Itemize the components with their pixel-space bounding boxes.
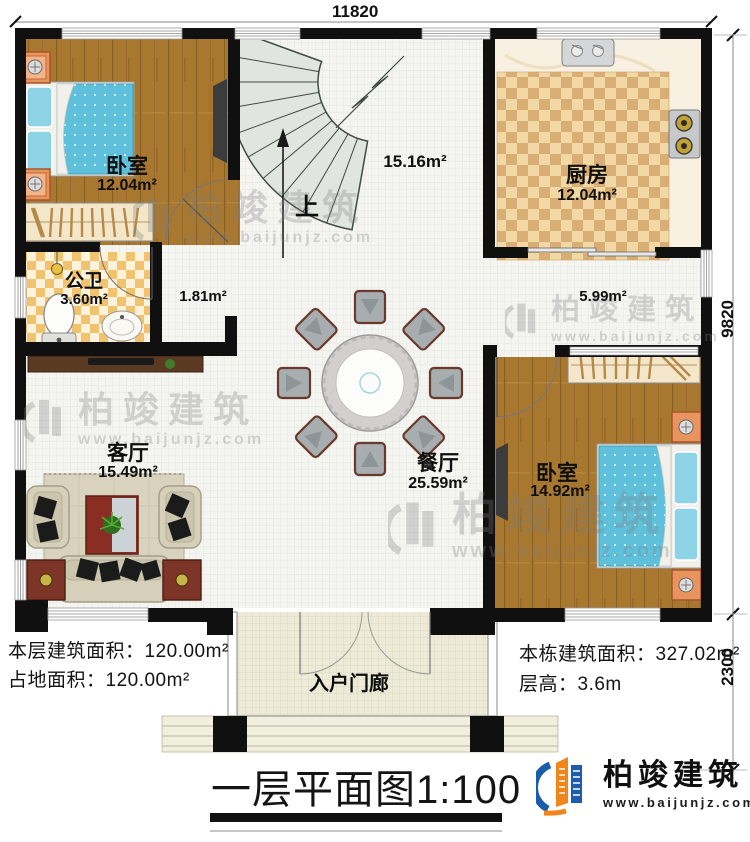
wardrobe-icon [20,203,153,241]
bathroom-sink-icon [102,311,142,341]
room-label-porch: 入户门廊 [309,674,389,694]
brand-url: www.baijunjz.com [603,795,750,810]
room-label-living: 客厅 [107,443,149,464]
floor-plan-page: 柏竣建筑www.baijunjz.com 柏竣建筑www.baijunjz.co… [0,0,750,842]
page-title: 一层平面图1:100 [211,757,521,815]
info-land-area-label: 占地面积： [8,670,106,691]
nightstand-icon [672,570,701,600]
page-title-scale: 1:100 [416,768,521,812]
info-land-area-value: 120.00m² [106,670,190,691]
info-floor-area-value: 120.00m² [145,641,229,662]
bed-icon [597,444,701,568]
title-underline [210,813,502,822]
brand-logo: 柏竣建筑 www.baijunjz.com [536,753,750,817]
room-area-bathroom: 3.60m² [60,292,108,307]
dim-top: 11820 [332,3,378,20]
info-storey-height: 层高：3.6m [519,669,622,696]
info-floor-area-label: 本层建筑面积： [8,641,145,662]
info-floor-area: 本层建筑面积：120.00m² [8,636,229,663]
info-total-area-value: 327.02m² [656,644,740,665]
info-storey-height-label: 层高： [519,674,578,695]
room-label-kitchen: 厨房 [566,165,608,186]
tv-panel-icon [213,79,227,163]
brand-name: 柏竣建筑 [603,760,750,792]
floor-plan-canvas [0,0,750,842]
dining-table-icon [278,291,462,475]
room-area-dining: 25.59m² [408,476,468,492]
tv-cabinet-icon [28,356,203,372]
room-label-bedroom2: 卧室 [536,463,578,484]
info-total-area: 本栋建筑面积：327.02m² [519,639,740,666]
room-area-living: 15.49m² [98,465,158,481]
kitchen-sink-icon [562,39,614,66]
room-area-bedroom2: 14.92m² [530,484,590,500]
tv-panel-icon [496,443,508,521]
room-label-dining: 餐厅 [417,453,459,474]
info-land-area: 占地面积：120.00m² [8,665,190,692]
area-hallway: 1.81m² [179,289,227,304]
nightstand-icon [672,412,701,442]
info-total-area-label: 本栋建筑面积： [519,644,656,665]
stove-icon [669,110,700,158]
room-label-bedroom1: 卧室 [106,156,148,177]
area-corridor: 5.99m² [579,289,627,304]
dim-side-main: 9820 [719,300,736,338]
page-title-text: 一层平面图 [211,768,416,812]
room-area-bedroom1: 12.04m² [97,178,157,194]
brand-logo-icon [536,753,594,817]
area-stairhall: 15.16m² [383,153,446,170]
sofa-set-icon [27,474,201,602]
room-area-kitchen: 12.04m² [557,188,617,204]
title-underline-thin [210,830,502,832]
info-storey-height-value: 3.6m [578,674,622,695]
room-label-bathroom: 公卫 [65,272,103,291]
stairs-up-label: 上 [295,196,319,220]
